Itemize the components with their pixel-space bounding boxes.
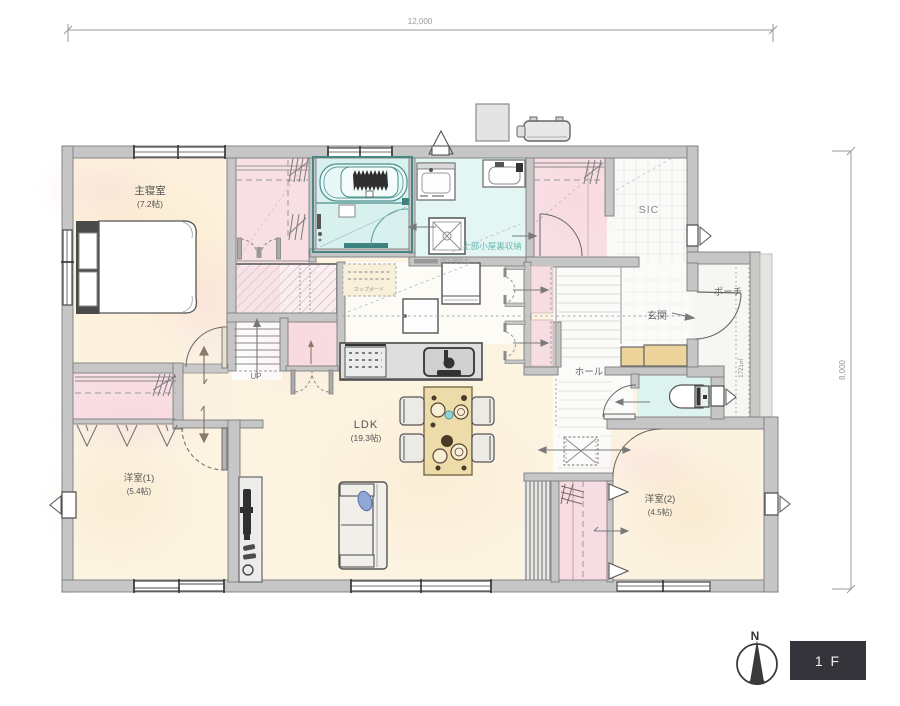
svg-text:(4.5帖): (4.5帖) — [648, 507, 673, 517]
svg-text:カップボード: カップボード — [354, 286, 384, 293]
svg-text:(19.3帖): (19.3帖) — [351, 433, 382, 443]
svg-text:玄関: 玄関 — [647, 309, 667, 322]
svg-text:(7.2帖): (7.2帖) — [137, 199, 163, 209]
svg-text:1 F: 1 F — [815, 653, 841, 669]
svg-text:SIC: SIC — [639, 204, 660, 216]
svg-text:主寝室: 主寝室 — [134, 184, 166, 197]
svg-text:8,000: 8,000 — [838, 359, 847, 380]
svg-text:ホール: ホール — [575, 367, 604, 378]
svg-text:1721㎡: 1721㎡ — [737, 358, 745, 377]
svg-text:上部小屋裏収納: 上部小屋裏収納 — [462, 241, 522, 251]
svg-text:洋室(2): 洋室(2) — [645, 493, 676, 505]
svg-text:12,000: 12,000 — [408, 17, 433, 26]
svg-text:LDK: LDK — [354, 419, 378, 431]
svg-text:(5.4帖): (5.4帖) — [127, 486, 152, 496]
svg-text:ポーチ: ポーチ — [714, 287, 743, 298]
svg-text:UP: UP — [250, 372, 261, 381]
svg-text:洋室(1): 洋室(1) — [124, 472, 155, 484]
svg-text:(固定階段式): (固定階段式) — [439, 257, 470, 265]
svg-text:N: N — [751, 629, 760, 643]
